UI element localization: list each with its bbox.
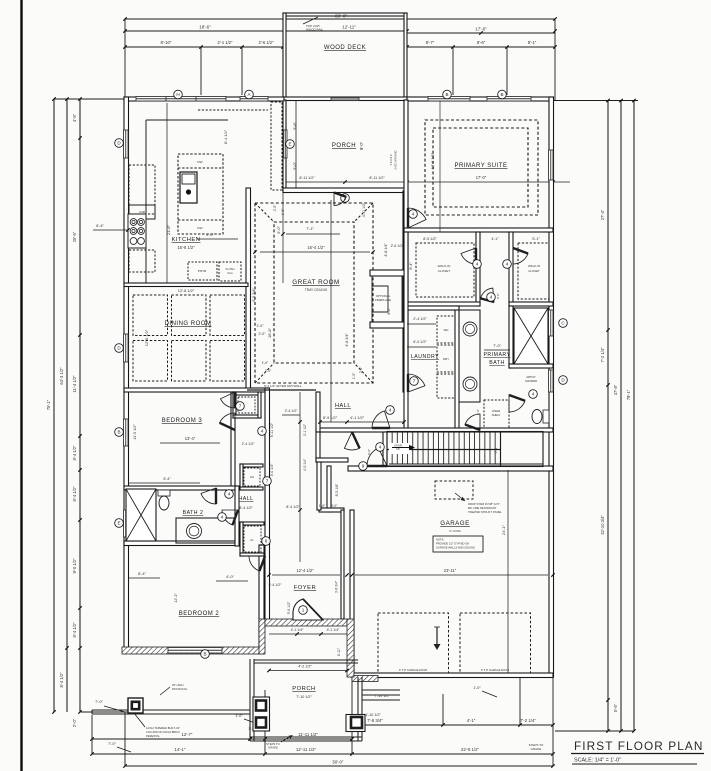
svg-text:8′-4 1/2″: 8′-4 1/2″ (239, 506, 253, 510)
svg-text:HALL: HALL (335, 403, 351, 409)
svg-text:H: H (176, 92, 179, 97)
svg-text:WOOD DECK: WOOD DECK (324, 45, 366, 51)
svg-text:1′-0″: 1′-0″ (257, 324, 265, 328)
svg-text:ARTIST: ARTIST (526, 375, 536, 379)
svg-text:SHOWER: SHOWER (525, 379, 537, 383)
svg-text:2′-0″: 2′-0″ (359, 366, 363, 373)
svg-text:2′-0″: 2′-0″ (259, 332, 267, 336)
svg-text:32′-10 3/4″: 32′-10 3/4″ (600, 515, 605, 535)
svg-text:CLOSET: CLOSET (528, 269, 540, 273)
svg-text:8′-5 1/8″: 8′-5 1/8″ (335, 483, 339, 497)
svg-text:3′-6 1/2″: 3′-6 1/2″ (287, 601, 291, 615)
svg-text:3′-0″: 3′-0″ (331, 504, 338, 508)
svg-text:4′-1 1/4″: 4′-1 1/4″ (327, 628, 341, 632)
svg-text:4: 4 (221, 515, 224, 520)
svg-text:WALK-IN: WALK-IN (438, 264, 451, 268)
svg-text:4′-0 1/4″: 4′-0 1/4″ (270, 463, 274, 477)
svg-text:8′-4 1/2″: 8′-4 1/2″ (72, 445, 77, 461)
svg-text:NOTE:: NOTE: (436, 538, 444, 542)
svg-text:BD. FIRE RETARDANT: BD. FIRE RETARDANT (468, 506, 497, 510)
svg-text:GRADE: GRADE (268, 746, 278, 750)
svg-text:PROVIDE 1/2″ GYP BD ON: PROVIDE 1/2″ GYP BD ON (436, 542, 469, 546)
svg-text:BEDROOM 3: BEDROOM 3 (162, 418, 203, 424)
svg-text:CL: CL (250, 538, 254, 542)
svg-text:36″ HIGH: 36″ HIGH (172, 683, 183, 687)
svg-text:8′-1″: 8′-1″ (528, 40, 537, 45)
svg-text:4: 4 (389, 408, 392, 413)
svg-text:LAUNDRY: LAUNDRY (411, 354, 439, 360)
svg-text:6′-0 1/2″: 6′-0 1/2″ (413, 340, 427, 344)
svg-text:4: 4 (476, 262, 479, 267)
svg-text:16′-4 1/2″: 16′-4 1/2″ (307, 245, 325, 250)
svg-text:DRY: DRY (443, 357, 449, 361)
svg-text:7: 7 (266, 479, 269, 484)
svg-text:2′-6 1/2″: 2′-6 1/2″ (391, 244, 405, 248)
svg-text:4: 4 (532, 392, 535, 397)
svg-text:64′-3 1/2″: 64′-3 1/2″ (59, 367, 64, 385)
svg-text:30′-0″: 30′-0″ (335, 14, 348, 20)
svg-text:17′-0″: 17′-0″ (476, 175, 487, 180)
svg-text:4′-8 3/4″: 4′-8 3/4″ (345, 333, 349, 347)
svg-text:8′-4 1/2″: 8′-4 1/2″ (72, 486, 77, 502)
svg-text:5′-4″: 5′-4″ (163, 477, 171, 481)
svg-text:4′-8 1/4″: 4′-8 1/4″ (384, 243, 388, 257)
svg-text:6: 6 (265, 539, 268, 544)
svg-text:9: 9 (362, 464, 365, 469)
svg-text:HALL: HALL (239, 496, 254, 502)
svg-text:PEDESTAL: PEDESTAL (146, 734, 160, 738)
svg-text:B: B (203, 652, 206, 657)
svg-text:4′-11 1/2″: 4′-11 1/2″ (362, 202, 366, 217)
svg-text:7′-0″: 7′-0″ (108, 741, 116, 746)
svg-text:7′-0″: 7′-0″ (95, 699, 103, 704)
svg-text:1′-10 1/2″: 1′-10 1/2″ (365, 713, 381, 717)
svg-text:FIREPLACE: FIREPLACE (375, 298, 391, 302)
svg-text:8′-5 1/2″: 8′-5 1/2″ (423, 237, 437, 241)
svg-text:2′-0″: 2′-0″ (496, 292, 500, 299)
svg-text:CAB: CAB (139, 210, 145, 214)
svg-text:5′-11 1/2″: 5′-11 1/2″ (270, 422, 274, 437)
svg-text:B: B (117, 430, 120, 435)
svg-text:50′-0″: 50′-0″ (333, 760, 344, 765)
svg-text:SHED OPENING: SHED OPENING (395, 150, 398, 169)
svg-text:DW: DW (197, 226, 202, 230)
svg-text:7: 7 (239, 404, 242, 409)
svg-text:7′-0″: 7′-0″ (493, 343, 501, 348)
svg-text:3′-6 3/4″: 3′-6 3/4″ (335, 580, 339, 593)
svg-text:13′-4″: 13′-4″ (185, 436, 196, 441)
svg-text:2′-4 1/2″: 2′-4 1/2″ (285, 409, 299, 413)
svg-text:4′-0″: 4′-0″ (226, 574, 234, 579)
svg-text:27′-4″: 27′-4″ (600, 209, 605, 220)
svg-text:25′-5″: 25′-5″ (72, 231, 77, 242)
svg-text:3′-6″: 3′-6″ (367, 448, 371, 455)
svg-text:DROP STAIR IN 5/8″ GYP: DROP STAIR IN 5/8″ GYP (468, 502, 500, 506)
svg-text:12′-1″: 12′-1″ (174, 593, 178, 603)
svg-text:7′-2 1/4″: 7′-2 1/4″ (520, 718, 536, 723)
svg-text:11′-4 1/2″: 11′-4 1/2″ (72, 375, 77, 392)
svg-text:4′-0 1/4″: 4′-0 1/4″ (303, 458, 307, 471)
svg-text:12′-7″: 12′-7″ (182, 732, 193, 737)
svg-text:15′-8 1/2″: 15′-8 1/2″ (177, 245, 195, 250)
svg-text:LINEN: LINEN (492, 409, 501, 413)
svg-text:BATH: BATH (489, 360, 504, 366)
svg-text:2′-1 1/2″: 2′-1 1/2″ (218, 40, 234, 45)
svg-text:8′-4 1/4″: 8′-4 1/4″ (223, 129, 228, 144)
svg-text:9′-0 1/2″: 9′-0 1/2″ (72, 558, 77, 574)
svg-text:9′ X 8′ GARAGE DOOR: 9′ X 8′ GARAGE DOOR (399, 668, 427, 672)
svg-text:WOOD RAIL: WOOD RAIL (306, 28, 323, 32)
svg-text:4: 4 (412, 212, 415, 217)
svg-text:5′-6″: 5′-6″ (613, 703, 618, 712)
svg-text:B: B (500, 92, 503, 97)
svg-text:TREATED STRUCT. PANEL: TREATED STRUCT. PANEL (468, 510, 502, 514)
svg-text:GARAGE: GARAGE (440, 520, 469, 527)
svg-text:2′-4 1/2″: 2′-4 1/2″ (269, 583, 283, 587)
svg-text:8′-4″: 8′-4″ (138, 571, 146, 576)
svg-text:GARAGE WALLS AND CEILING: GARAGE WALLS AND CEILING (436, 546, 475, 550)
svg-text:PNTR: PNTR (198, 269, 207, 273)
svg-text:9′ X 8′ GARAGE DOOR: 9′ X 8′ GARAGE DOOR (481, 668, 509, 672)
svg-text:18′-6″: 18′-6″ (199, 25, 211, 30)
svg-text:CLOSET: CLOSET (438, 269, 450, 273)
svg-text:TRAY CEILING: TRAY CEILING (305, 288, 328, 292)
svg-text:13′-0 1/2″: 13′-0 1/2″ (430, 152, 435, 169)
svg-text:4″ CONC: 4″ CONC (449, 529, 461, 533)
svg-text:1′-0″: 1′-0″ (262, 361, 269, 365)
svg-text:4: 4 (379, 445, 382, 450)
svg-text:COLUMN ON 24X24 BRICK: COLUMN ON 24X24 BRICK (146, 730, 180, 734)
svg-text:75′-1″: 75′-1″ (46, 399, 51, 410)
svg-text:4: 4 (228, 492, 231, 497)
svg-text:8′-11″: 8′-11″ (337, 647, 341, 656)
svg-text:5′-0″: 5′-0″ (276, 226, 281, 234)
svg-text:1′-0″: 1′-0″ (281, 208, 285, 215)
svg-text:BATH 2: BATH 2 (183, 510, 204, 516)
svg-text:5′-0″: 5′-0″ (206, 232, 214, 237)
svg-text:LIN: LIN (250, 475, 254, 479)
svg-text:GRADE: GRADE (531, 747, 542, 751)
svg-text:FOYER: FOYER (294, 585, 316, 591)
svg-text:1′-0″: 1′-0″ (473, 686, 481, 690)
svg-text:SCALE: 1/4″ = 1′-0″: SCALE: 1/4″ = 1′-0″ (574, 758, 621, 764)
svg-text:2′-0″: 2′-0″ (265, 369, 272, 373)
svg-text:1′-0″: 1′-0″ (352, 372, 356, 379)
svg-text:4′-1 1/2″: 4′-1 1/2″ (350, 415, 365, 420)
svg-text:12′-11″: 12′-11″ (342, 25, 356, 30)
svg-text:5′-1″: 5′-1″ (532, 237, 540, 241)
svg-text:PRIMARY: PRIMARY (483, 352, 510, 358)
svg-text:17′-6″: 17′-6″ (475, 27, 487, 32)
svg-text:DW: DW (197, 160, 202, 164)
svg-text:79′-1″: 79′-1″ (626, 389, 631, 400)
svg-text:7′-1″: 7′-1″ (306, 226, 314, 231)
svg-text:8′-4″: 8′-4″ (409, 262, 413, 270)
svg-text:WOOD RAIL: WOOD RAIL (172, 687, 188, 691)
svg-text:2′-4 1/2″: 2′-4 1/2″ (242, 442, 256, 446)
svg-text:23′-11″: 23′-11″ (444, 568, 457, 573)
svg-text:47′-8″: 47′-8″ (613, 384, 618, 395)
svg-text:8′-10″: 8′-10″ (161, 40, 172, 45)
svg-text:B: B (445, 92, 448, 97)
svg-text:FLUSH: FLUSH (226, 267, 235, 271)
svg-text:E: E (117, 521, 120, 526)
svg-text:FIRST FLOOR PLAN: FIRST FLOOR PLAN (574, 739, 703, 753)
svg-text:8′-4 1/2″: 8′-4 1/2″ (72, 622, 77, 638)
svg-text:2′-1 1/2″: 2′-1 1/2″ (303, 423, 307, 436)
svg-text:11′-5 1/2″: 11′-5 1/2″ (133, 424, 137, 440)
svg-text:8′-11 1/2″: 8′-11 1/2″ (369, 176, 385, 180)
svg-text:2′-0″: 2′-0″ (273, 204, 277, 211)
svg-text:5′-1 1/2″ AFTER DRYWALL: 5′-1 1/2″ AFTER DRYWALL (264, 384, 302, 388)
svg-text:4: 4 (490, 295, 493, 300)
svg-text:5′-6″: 5′-6″ (494, 446, 498, 454)
svg-text:7′-2 1/4″: 7′-2 1/4″ (600, 347, 605, 363)
svg-text:KITCHEN: KITCHEN (172, 237, 201, 243)
svg-text:12′-8 1/2″: 12′-8 1/2″ (144, 329, 149, 346)
svg-text:2′-6 1/2″: 2′-6 1/2″ (259, 40, 275, 45)
svg-text:GREAT ROOM: GREAT ROOM (292, 279, 339, 286)
svg-text:PRIMARY SUITE: PRIMARY SUITE (455, 163, 508, 169)
svg-text:4′-1 1/4″: 4′-1 1/4″ (291, 628, 305, 632)
svg-text:8′-11 1/2″: 8′-11 1/2″ (299, 176, 315, 180)
svg-text:8′-4 1/2″: 8′-4 1/2″ (59, 672, 64, 688)
svg-text:PORCH: PORCH (332, 143, 356, 149)
svg-text:7′-10 1/2″: 7′-10 1/2″ (296, 695, 312, 699)
svg-text:4: 4 (261, 429, 264, 434)
svg-text:22′-8 1/2″: 22′-8 1/2″ (461, 747, 480, 752)
svg-text:24′-1″: 24′-1″ (501, 524, 506, 535)
svg-text:1: 1 (302, 608, 305, 613)
svg-text:8′-9 1/2″: 8′-9 1/2″ (323, 415, 338, 420)
svg-text:DINING ROOM: DINING ROOM (165, 321, 212, 327)
svg-text:1′-0″: 1′-0″ (319, 504, 326, 508)
svg-text:7′-8 3/4″: 7′-8 3/4″ (367, 718, 383, 723)
svg-text:STAIR: STAIR (394, 444, 402, 448)
svg-text:4: 4 (506, 262, 509, 267)
svg-text:8′-7″: 8′-7″ (426, 40, 435, 45)
svg-text:6′-4″: 6′-4″ (96, 223, 104, 228)
svg-text:8′-4 1/2″: 8′-4 1/2″ (286, 505, 300, 509)
svg-text:12′-11 1/2″: 12′-11 1/2″ (296, 747, 317, 752)
svg-text:9′-0″: 9′-0″ (359, 141, 364, 150)
svg-text:14′-1″: 14′-1″ (175, 747, 186, 752)
svg-text:E: E (288, 142, 291, 147)
svg-text:2 6 X 8 0: 2 6 X 8 0 (389, 154, 393, 165)
svg-text:16′-8″: 16′-8″ (267, 327, 272, 338)
svg-text:SHELF: SHELF (492, 413, 501, 417)
svg-text:12X12 TAPERED BUILT-UP: 12X12 TAPERED BUILT-UP (146, 726, 180, 730)
svg-text:4′-1″: 4′-1″ (491, 237, 499, 241)
svg-text:1′-0″: 1′-0″ (235, 714, 243, 718)
svg-text:2′-4 1/2″: 2′-4 1/2″ (413, 317, 427, 321)
svg-text:4′-1″: 4′-1″ (467, 718, 476, 723)
svg-text:BEDROOM 2: BEDROOM 2 (179, 611, 220, 617)
svg-text:12′-4 1/2″: 12′-4 1/2″ (296, 568, 314, 573)
svg-text:WH: WH (444, 328, 449, 332)
svg-text:PORCH: PORCH (292, 686, 315, 692)
svg-text:7: 7 (413, 379, 416, 384)
svg-text:2′-0″: 2′-0″ (72, 718, 77, 727)
svg-text:CLG: CLG (227, 271, 233, 275)
svg-text:WALK-IN: WALK-IN (528, 264, 540, 268)
svg-text:12′-8 1/2″: 12′-8 1/2″ (178, 288, 195, 293)
svg-text:4′-5″: 4′-5″ (72, 113, 77, 122)
svg-text:8′-6″: 8′-6″ (477, 40, 486, 45)
svg-text:4′-2 1/2″: 4′-2 1/2″ (298, 665, 312, 669)
svg-text:11′-11 1/2″: 11′-11 1/2″ (298, 732, 318, 737)
